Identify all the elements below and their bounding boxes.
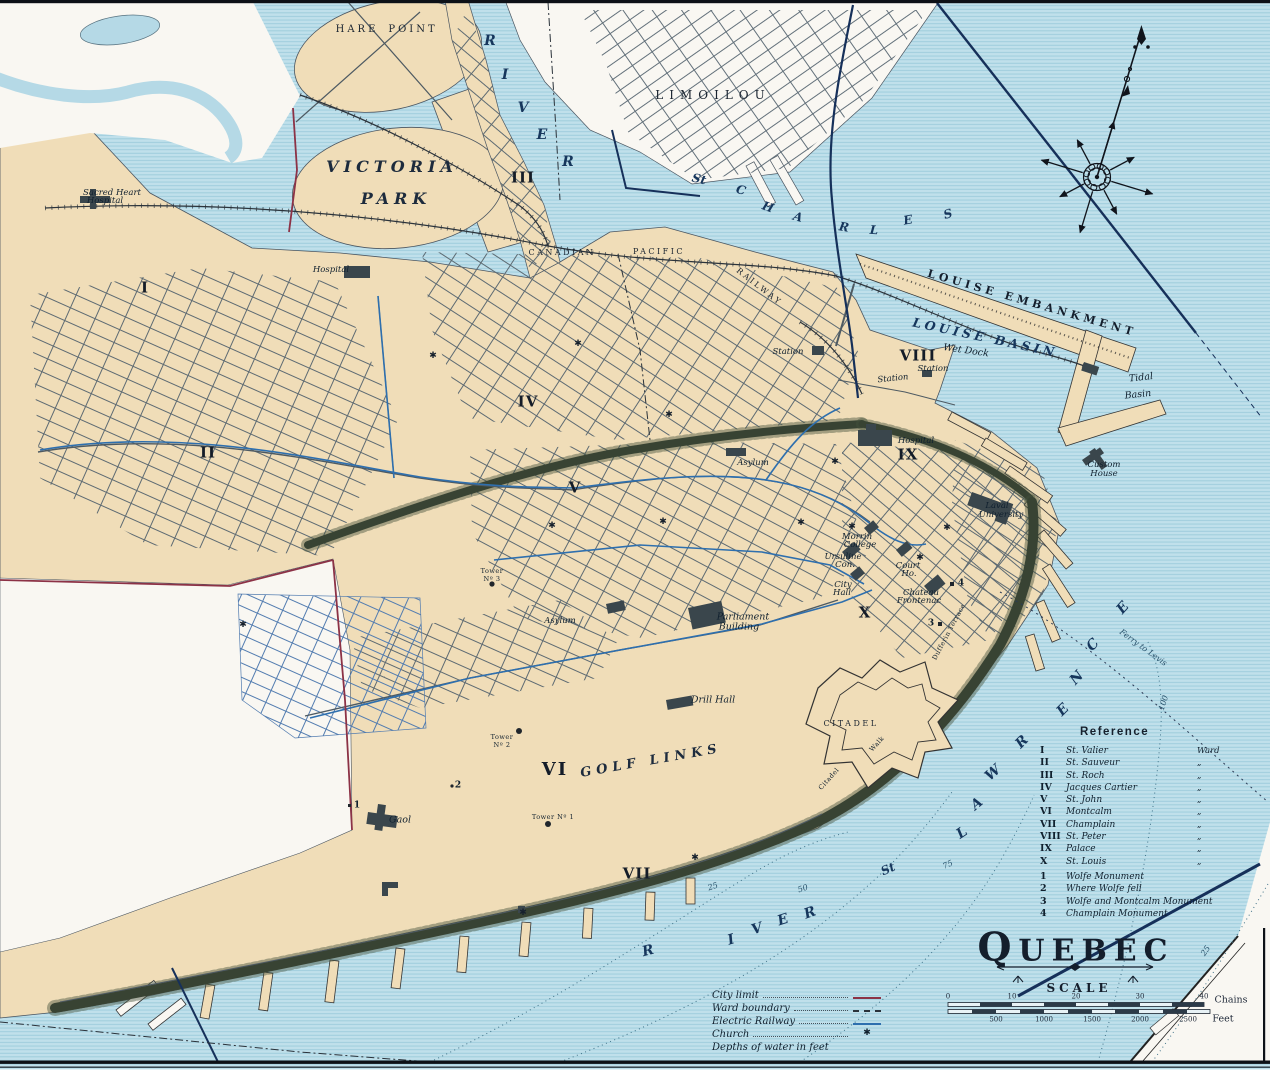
key-leader <box>753 1036 848 1037</box>
ward-name: Palace <box>1066 844 1197 854</box>
key-row: Electric Railway <box>712 1014 882 1027</box>
key-row: Depths of water in feet <box>712 1040 882 1053</box>
ward-numeral: 4 <box>1040 908 1066 919</box>
ward-numeral: II <box>1040 757 1066 768</box>
reference-row: IXPalace„ <box>1040 843 1245 855</box>
ward-suffix: „ <box>1197 832 1245 842</box>
key-label: Ward boundary <box>712 1003 790 1014</box>
key-label: City limit <box>712 990 759 1001</box>
ward-suffix: „ <box>1197 771 1245 781</box>
ward-name: St. Louis <box>1066 857 1197 867</box>
reference-row: IISt. Sauveur„ <box>1040 757 1245 769</box>
reference-row: VIIISt. Peter„ <box>1040 831 1245 843</box>
ward-suffix: „ <box>1197 807 1245 817</box>
key-swatch-dash-icon <box>852 1010 882 1012</box>
reference-row: 3Wolfe and Montcalm Monument <box>1040 896 1245 908</box>
ward-name: Champlain <box>1066 820 1197 830</box>
key-label: Church <box>712 1029 749 1040</box>
key-leader <box>794 1010 848 1011</box>
map-graphic <box>0 0 1270 1091</box>
key-row: City limit <box>712 988 882 1001</box>
key-row: Ward boundary <box>712 1001 882 1014</box>
ward-name: Wolfe Monument <box>1066 872 1245 882</box>
key-swatch-maroon-icon <box>852 997 882 999</box>
ward-numeral: III <box>1040 770 1066 781</box>
ward-numeral: V <box>1040 794 1066 805</box>
ward-numeral: X <box>1040 856 1066 867</box>
ward-suffix: „ <box>1197 795 1245 805</box>
key-leader <box>763 997 848 998</box>
key-swatch-blue-icon <box>852 1023 882 1025</box>
key-label: Depths of water in feet <box>712 1042 829 1053</box>
ward-name: Champlain Monument <box>1066 909 1245 919</box>
ward-numeral: 2 <box>1040 883 1066 894</box>
reference-row: VIIChamplain„ <box>1040 819 1245 831</box>
ward-suffix: „ <box>1197 758 1245 768</box>
key-label: Electric Railway <box>712 1016 795 1027</box>
ward-name: Where Wolfe fell <box>1066 884 1245 894</box>
ward-suffix: „ <box>1197 820 1245 830</box>
reference-row: XSt. Louis„ <box>1040 856 1245 868</box>
key-row: Church✱ <box>712 1027 882 1040</box>
ward-name: St. Valier <box>1066 746 1197 756</box>
reference-row: ISt. ValierWard <box>1040 745 1245 757</box>
reference-row: VSt. John„ <box>1040 794 1245 806</box>
ward-name: St. John <box>1066 795 1197 805</box>
ward-numeral: 1 <box>1040 871 1066 882</box>
ward-numeral: 3 <box>1040 896 1066 907</box>
key-leader <box>799 1023 848 1024</box>
ward-suffix: Ward <box>1197 746 1245 756</box>
ward-numeral: VII <box>1040 819 1066 830</box>
ward-name: St. Roch <box>1066 771 1197 781</box>
reference-row: 1Wolfe Monument <box>1040 871 1245 883</box>
ward-name: St. Peter <box>1066 832 1197 842</box>
ward-suffix: „ <box>1197 857 1245 867</box>
ward-numeral: IX <box>1040 843 1066 854</box>
ward-numeral: IV <box>1040 782 1066 793</box>
quebec-map: HAREPOINTVICTORIAPARKRIVERIIILIMOILOUStC… <box>0 0 1270 1091</box>
ward-name: Wolfe and Montcalm Monument <box>1066 897 1245 907</box>
reference-row: IIISt. Roch„ <box>1040 770 1245 782</box>
reference-rows: ISt. ValierWardIISt. Sauveur„IIISt. Roch… <box>1040 745 1245 920</box>
ward-suffix: „ <box>1197 783 1245 793</box>
ward-suffix: „ <box>1197 844 1245 854</box>
reference-heading: Reference <box>1080 726 1245 738</box>
ward-name: Jacques Cartier <box>1066 783 1197 793</box>
reference-row: 2Where Wolfe fell <box>1040 883 1245 895</box>
reference-legend: Reference ISt. ValierWardIISt. Sauveur„I… <box>1040 726 1245 920</box>
ward-numeral: VIII <box>1040 831 1066 842</box>
map-key: City limitWard boundaryElectric RailwayC… <box>712 988 882 1053</box>
ward-numeral: VI <box>1040 806 1066 817</box>
key-swatch-church-icon: ✱ <box>852 1029 882 1038</box>
reference-row: VIMontcalm„ <box>1040 806 1245 818</box>
reference-row: 4Champlain Monument <box>1040 908 1245 920</box>
ward-name: Montcalm <box>1066 807 1197 817</box>
ward-numeral: I <box>1040 745 1066 756</box>
reference-row: IVJacques Cartier„ <box>1040 782 1245 794</box>
ward-name: St. Sauveur <box>1066 758 1197 768</box>
